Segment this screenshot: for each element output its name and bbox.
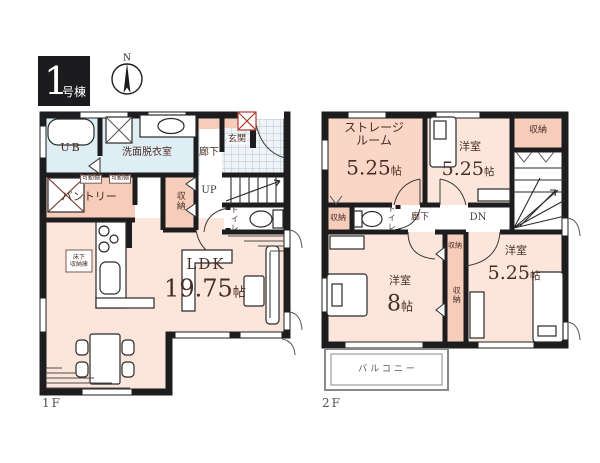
room-label-washroom: 洗面脱衣室 [122,148,172,159]
room-label-toilet-2f: トイレ [387,205,395,232]
room-label-closet-mid: 収納 [448,242,462,249]
floor2-casement-flags [568,218,580,340]
floor1-label: 1F [42,397,62,410]
room-label-storage-room: ストレージ ルーム [344,121,404,146]
room-label-closet-left: 収納 [330,214,346,222]
tv-board-icon [266,246,279,324]
toilet-icon-1f [250,210,283,228]
room-label-closet-vertical: 収納 [452,286,460,304]
building-suffix: 号棟 [62,83,86,100]
room-label-entrance: 玄関 [227,135,247,144]
stairs-up-label: UP [201,186,216,197]
stairs-dn-label: DN [470,213,487,224]
room-label-bedroom-left: 洋室 [389,275,411,287]
sink-icon [158,119,184,134]
room-size-storage-room: 5.25帖 [346,158,402,179]
room-label-bedroom-right: 洋室 [505,245,527,257]
desk-icon-top-bedroom [478,189,510,201]
room-size-ldk: 19.75帖 [164,276,246,301]
floorplan-drawing [0,0,600,463]
shelf-label-right: 可動棚 [109,175,131,184]
room-label-hallway-2f: 廊下 [411,213,429,222]
building-badge: 1 号棟 [38,56,90,106]
room-label-ub: UB [60,142,81,154]
room-size-bedroom-right: 5.25帖 [488,264,541,284]
room-label-closet-1f: 収納 [174,191,183,211]
room-label-closet-top: 収納 [529,126,547,135]
room-label-pantry: パントリー [61,191,117,203]
floor2-label: 2F [322,397,342,410]
underfloor-storage-label: 床下 収納庫 [70,254,88,268]
room-size-bedroom-left: 8帖 [387,292,413,315]
room-label-toilet-1f: トイレ [230,206,238,233]
desk-icon-right-bedroom [470,292,484,338]
room-label-hallway-1f: 廊下 [199,148,219,159]
shelf-label-left: 可動棚 [80,175,102,184]
room-size-bedroom-top: 5.25帖 [442,160,495,180]
balcony-label: バルコニー [358,365,418,374]
room-label-bedroom-top: 洋室 [459,141,481,153]
compass-icon [112,63,142,94]
toilet-icon-2f [354,211,382,227]
desk-icon-left-bedroom [330,236,364,249]
side-table-icon [244,276,264,306]
compass-n-label: N [123,54,131,63]
floorplan-sheet: 1 号棟 N UB 洗面脱衣室 廊下 玄関 UP 収納 トイレ パントリー 可動… [0,0,600,463]
bed-icon-left-bedroom [327,274,367,316]
room-label-ldk: LDK [186,257,225,273]
